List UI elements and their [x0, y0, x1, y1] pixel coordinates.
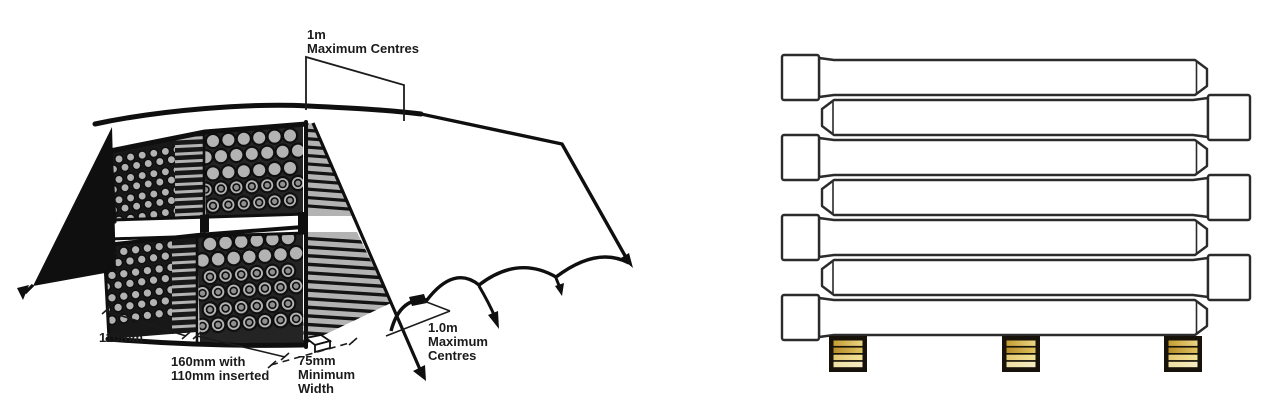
bearer-stripe: [1169, 362, 1198, 367]
pipe-side-stripe: [175, 153, 206, 155]
pipe-side-stripe: [175, 198, 206, 200]
pipe-barrel: [819, 138, 1207, 177]
label-line: 1m: [307, 28, 419, 42]
pipe-barrel: [822, 178, 1208, 217]
inserted-pipe-end: [271, 198, 278, 205]
pipe-end-160: [260, 146, 274, 160]
pipe-side-stripe: [172, 254, 198, 255]
pipe-end-160: [221, 133, 235, 147]
inserted-pipe-end: [238, 304, 245, 311]
inserted-pipe-end: [285, 300, 292, 307]
pipe-side-stripe: [172, 294, 198, 295]
inserted-pipe-end: [269, 301, 276, 308]
pipe-end-110: [115, 155, 123, 163]
pipe-end-110: [114, 303, 123, 312]
stack-side-lower: [300, 228, 395, 348]
pipe-row: [782, 215, 1207, 260]
pipe-side-stripe: [175, 145, 206, 147]
pipe-row: [822, 255, 1250, 300]
pipe-side-stripe: [175, 168, 206, 170]
inserted-pipe-end: [225, 201, 232, 208]
pipe-side-stripe: [172, 318, 198, 319]
inserted-pipe-end: [215, 289, 222, 296]
peg-arrow-mid: [555, 283, 564, 296]
inserted-pipe-end: [285, 267, 292, 274]
pipe-end-160: [268, 162, 282, 176]
pipe-barrel: [822, 258, 1208, 297]
pipe-side-stripe: [175, 191, 206, 193]
pipe-end-110: [143, 244, 152, 253]
inserted-pipe-end: [264, 182, 271, 189]
label-110mm: 110mm: [99, 331, 143, 345]
pipe-end-110: [161, 274, 170, 283]
pipe-end-110: [137, 300, 146, 309]
pipe-end-110: [108, 271, 117, 280]
pipe-end-110: [156, 198, 164, 206]
pipe-end-110: [143, 289, 152, 298]
tarp-ridge: [95, 105, 421, 124]
inserted-pipe-end: [261, 285, 268, 292]
pipe-end-110: [115, 175, 123, 183]
pipe-end-110: [155, 309, 164, 318]
pipe-side-stripe: [175, 160, 206, 162]
bearer-stripe: [1007, 341, 1036, 346]
pipe-end-110: [143, 311, 152, 320]
label-line: Minimum: [298, 368, 355, 382]
inserted-pipe-end: [279, 181, 286, 188]
covered-stack-illustration: [0, 0, 700, 408]
bearer-stripe: [1169, 341, 1198, 346]
pipe-side-stripe: [172, 310, 198, 311]
pipe-barrel: [819, 58, 1207, 97]
inserted-pipe-end: [277, 317, 284, 324]
pipe-end-110: [150, 190, 158, 198]
inserted-pipe-end: [230, 320, 237, 327]
pipe-row: [822, 175, 1250, 220]
pipe-end-110: [126, 257, 135, 266]
pipe-end-110: [137, 255, 146, 264]
timber-bearer: [1164, 336, 1202, 372]
pipe-end-110: [167, 176, 175, 184]
pipe-row: [782, 135, 1207, 180]
pipe-end-110: [126, 173, 134, 181]
pipe-end-160: [237, 132, 251, 146]
pipe-side-stripe: [172, 262, 198, 263]
pipe-end-110: [161, 208, 169, 216]
pipe-side-stripe: [172, 302, 198, 303]
label-160mm: 160mm with 110mm inserted: [171, 355, 269, 383]
pipe-end-160: [276, 145, 290, 159]
pipe-end-110: [126, 301, 135, 310]
pipe-row: [782, 295, 1207, 340]
pipe-end-110: [138, 171, 146, 179]
pipe-end-160: [237, 164, 251, 178]
pipe-socket: [782, 55, 819, 100]
pipe-end-110: [144, 159, 152, 167]
pipe-end-110: [156, 157, 164, 165]
pipe-storage-figure: 1m Maximum Centres 110mm 160mm with 110m…: [0, 0, 1283, 408]
label-peg-centres: 1.0m Maximum Centres: [428, 321, 488, 363]
inserted-pipe-end: [293, 283, 300, 290]
pipe-end-110: [161, 297, 170, 306]
pipe-socket: [782, 295, 819, 340]
tie-block: [409, 294, 427, 306]
pipe-barrel: [822, 98, 1208, 137]
pipe-end-110: [114, 281, 123, 290]
pipe-side-stripe: [172, 270, 198, 271]
inserted-pipe-end: [240, 200, 247, 207]
pipe-barrel: [819, 298, 1207, 337]
pipe-end-160: [221, 165, 235, 179]
bearer-stripe: [834, 341, 863, 346]
pipe-end-110: [131, 268, 140, 277]
pipe-side-stripe: [172, 326, 198, 327]
label-ridge-centres: 1m Maximum Centres: [307, 28, 419, 56]
pipe-barrel: [819, 218, 1207, 257]
inserted-pipe-end: [199, 290, 206, 297]
pipe-end-160: [252, 163, 266, 177]
pipe-end-160: [242, 249, 257, 264]
pipe-end-160: [291, 144, 305, 158]
pipe-end-160: [214, 149, 228, 163]
inserted-pipe-end: [246, 319, 253, 326]
pipe-end-110: [167, 196, 175, 204]
pipe-end-110: [126, 194, 134, 202]
pipe-end-110: [126, 153, 134, 161]
label-line: 110mm inserted: [171, 369, 269, 383]
tarp-left-drape: [33, 127, 116, 286]
bearer-stripe: [1169, 355, 1198, 360]
pipe-socket: [1208, 175, 1250, 220]
label-line: Maximum: [428, 335, 488, 349]
label-line: 75mm: [298, 354, 355, 368]
bearer-stripe: [1007, 355, 1036, 360]
inserted-pipe-end: [218, 185, 225, 192]
pipe-end-110: [149, 298, 158, 307]
inserted-pipe-end: [199, 323, 206, 330]
inserted-pipe-end: [277, 284, 284, 291]
pipe-socket: [1208, 95, 1250, 140]
pipe-end-110: [156, 178, 164, 186]
pipe-end-110: [121, 204, 129, 212]
pipe-end-110: [150, 170, 158, 178]
inserted-pipe-end: [222, 305, 229, 312]
bearer-stripe: [1007, 362, 1036, 367]
pipe-end-160: [218, 236, 233, 251]
pipe-end-110: [132, 182, 140, 190]
label-line: Width: [298, 382, 355, 396]
pipe-socket: [782, 215, 819, 260]
pipe-end-160: [283, 128, 297, 142]
pipe-end-110: [137, 277, 146, 286]
pipe-end-110: [121, 184, 129, 192]
inserted-pipe-end: [256, 199, 263, 206]
pipe-side-stripe: [175, 176, 206, 178]
pipe-row: [822, 95, 1250, 140]
pipe-end-160: [206, 134, 220, 148]
pipe-end-110: [138, 151, 146, 159]
pipe-end-160: [229, 148, 243, 162]
timber-bearer: [1002, 336, 1040, 372]
inserted-pipe-end: [253, 270, 260, 277]
bundle-face-upper-large: [199, 122, 306, 220]
pipe-end-160: [226, 251, 241, 266]
pipe-end-110: [132, 161, 140, 169]
pipe-end-110: [161, 188, 169, 196]
bearer-stripe: [834, 348, 863, 353]
inserted-pipe-end: [269, 269, 276, 276]
inserted-pipe-end: [233, 184, 240, 191]
pipe-end-160: [258, 248, 273, 263]
inserted-pipe-end: [295, 180, 302, 187]
timber-bearer: [829, 336, 867, 372]
pipe-socket: [782, 135, 819, 180]
label-line: Centres: [428, 349, 488, 363]
pipe-end-110: [161, 252, 170, 261]
corner-bearer-block: [306, 335, 330, 352]
pipe-end-110: [108, 293, 117, 302]
inserted-pipe-end: [210, 202, 217, 209]
pipe-end-110: [143, 266, 152, 275]
pipe-end-160: [206, 166, 220, 180]
pipe-end-110: [119, 269, 128, 278]
bearer-stripe: [834, 355, 863, 360]
pipe-end-110: [161, 168, 169, 176]
inserted-pipe-end: [261, 318, 268, 325]
pipe-end-160: [273, 247, 288, 262]
inserted-pipe-end: [207, 306, 214, 313]
inserted-pipe-end: [238, 271, 245, 278]
inserted-pipe-end: [230, 287, 237, 294]
pipe-end-110: [155, 287, 164, 296]
inserted-pipe-end: [215, 321, 222, 328]
pipe-end-110: [132, 202, 140, 210]
pipe-end-110: [149, 253, 158, 262]
pipe-end-160: [245, 147, 259, 161]
bearer-stripe: [1007, 348, 1036, 353]
pipe-end-160: [203, 237, 218, 252]
pipe-end-110: [149, 276, 158, 285]
pipe-end-160: [252, 131, 266, 145]
pipe-end-110: [150, 149, 158, 157]
pipe-side-stripe: [175, 206, 206, 208]
label-75mm: 75mm Minimum Width: [298, 354, 355, 396]
bundle-face-lower-large: [195, 224, 304, 346]
pipe-end-110: [131, 290, 140, 299]
pipe-end-110: [161, 147, 169, 155]
label-line: Maximum Centres: [307, 42, 419, 56]
pipe-side-stripe: [172, 286, 198, 287]
pipe-side-stripe: [175, 183, 206, 185]
tarp-sheet-edge: [421, 114, 628, 261]
pipe-end-110: [131, 245, 140, 254]
inserted-pipe-end: [207, 273, 214, 280]
pipe-end-160: [268, 130, 282, 144]
pipe-end-110: [119, 247, 128, 256]
pipe-end-110: [119, 292, 128, 301]
inserted-pipe-end: [293, 315, 300, 322]
pipe-side-stripe: [175, 214, 206, 216]
pipe-socket: [1208, 255, 1250, 300]
pipe-side-stripe: [172, 278, 198, 279]
peg-arrow-mid: [488, 311, 499, 329]
pipe-end-110: [155, 242, 164, 251]
inserted-pipe-end: [222, 272, 229, 279]
label-line: 160mm with: [171, 355, 269, 369]
inserted-pipe-end: [287, 197, 294, 204]
pipe-end-110: [144, 180, 152, 188]
pipe-end-160: [211, 252, 226, 267]
pipe-side-stripe: [172, 246, 198, 247]
pipe-end-110: [144, 200, 152, 208]
pipe-row: [782, 55, 1207, 100]
bundle-face-lower-small: [102, 234, 198, 342]
stacked-pipes-side-view: [760, 30, 1280, 380]
inserted-pipe-end: [248, 183, 255, 190]
pipe-end-110: [155, 265, 164, 274]
inserted-pipe-end: [253, 303, 260, 310]
bearer-stripe: [834, 362, 863, 367]
inserted-pipe-end: [246, 286, 253, 293]
bearer-stripe: [1169, 348, 1198, 353]
pipe-end-160: [283, 161, 297, 175]
pipe-end-110: [167, 156, 175, 164]
pipe-end-110: [121, 163, 129, 171]
pipe-end-110: [126, 279, 135, 288]
label-line: 110mm: [99, 331, 143, 345]
label-line: 1.0m: [428, 321, 488, 335]
pipe-end-110: [138, 192, 146, 200]
pipe-end-110: [115, 196, 123, 204]
pipe-end-160: [289, 246, 304, 261]
